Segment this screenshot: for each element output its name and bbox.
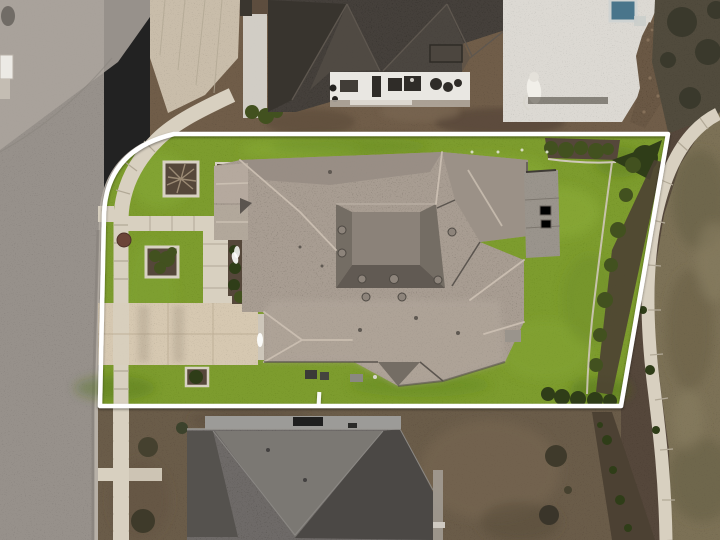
side-path — [243, 14, 267, 118]
trash-bin — [305, 370, 317, 379]
boundary-tick — [317, 392, 322, 405]
rear-stoop — [505, 330, 521, 342]
roof-clerestory — [430, 45, 462, 62]
bed-shrub — [189, 370, 203, 384]
mail-kiosk-pad — [0, 79, 10, 99]
deck-shadow — [528, 97, 608, 104]
wall-dot — [373, 375, 377, 379]
side-wall — [433, 470, 443, 540]
patio-wall-highlight — [350, 100, 412, 105]
fountain-top — [529, 72, 539, 82]
fence-shadow — [240, 0, 252, 16]
main-house — [214, 152, 528, 386]
street-stain — [1, 6, 15, 26]
ac-unit — [541, 220, 551, 228]
bush — [131, 509, 155, 533]
roof-channel-center — [352, 212, 420, 265]
bush — [138, 437, 158, 457]
mail-kiosk — [0, 55, 13, 79]
bush — [545, 445, 567, 467]
utility-cover — [117, 233, 131, 247]
ac-unit — [540, 206, 551, 215]
roof-vent — [303, 478, 307, 482]
aerial-photo-canvas — [0, 0, 720, 540]
pool-steps — [634, 16, 646, 26]
aerial-photo — [0, 0, 720, 540]
reflection-highlight — [234, 246, 240, 258]
ac-equipment — [350, 374, 363, 382]
trash-bin — [320, 372, 329, 380]
wall-trim — [433, 522, 445, 528]
bottom-parkway — [98, 406, 655, 540]
bush — [539, 505, 559, 525]
curb-walk-stub — [98, 468, 113, 481]
roof-vent-box — [348, 423, 357, 428]
planting-bed-1 — [164, 162, 198, 196]
brown-lawn-mottle — [666, 150, 720, 522]
entry-walk-neighbor — [129, 468, 162, 481]
planting-bed-3 — [186, 368, 208, 386]
pool-deck-area — [503, 0, 668, 128]
roof-vent — [266, 448, 270, 452]
bush — [176, 422, 188, 434]
bush — [564, 486, 572, 494]
planting-bed-2 — [146, 247, 178, 277]
pool — [610, 0, 636, 21]
reflection-highlight — [257, 333, 263, 347]
solar-panel — [293, 417, 323, 426]
